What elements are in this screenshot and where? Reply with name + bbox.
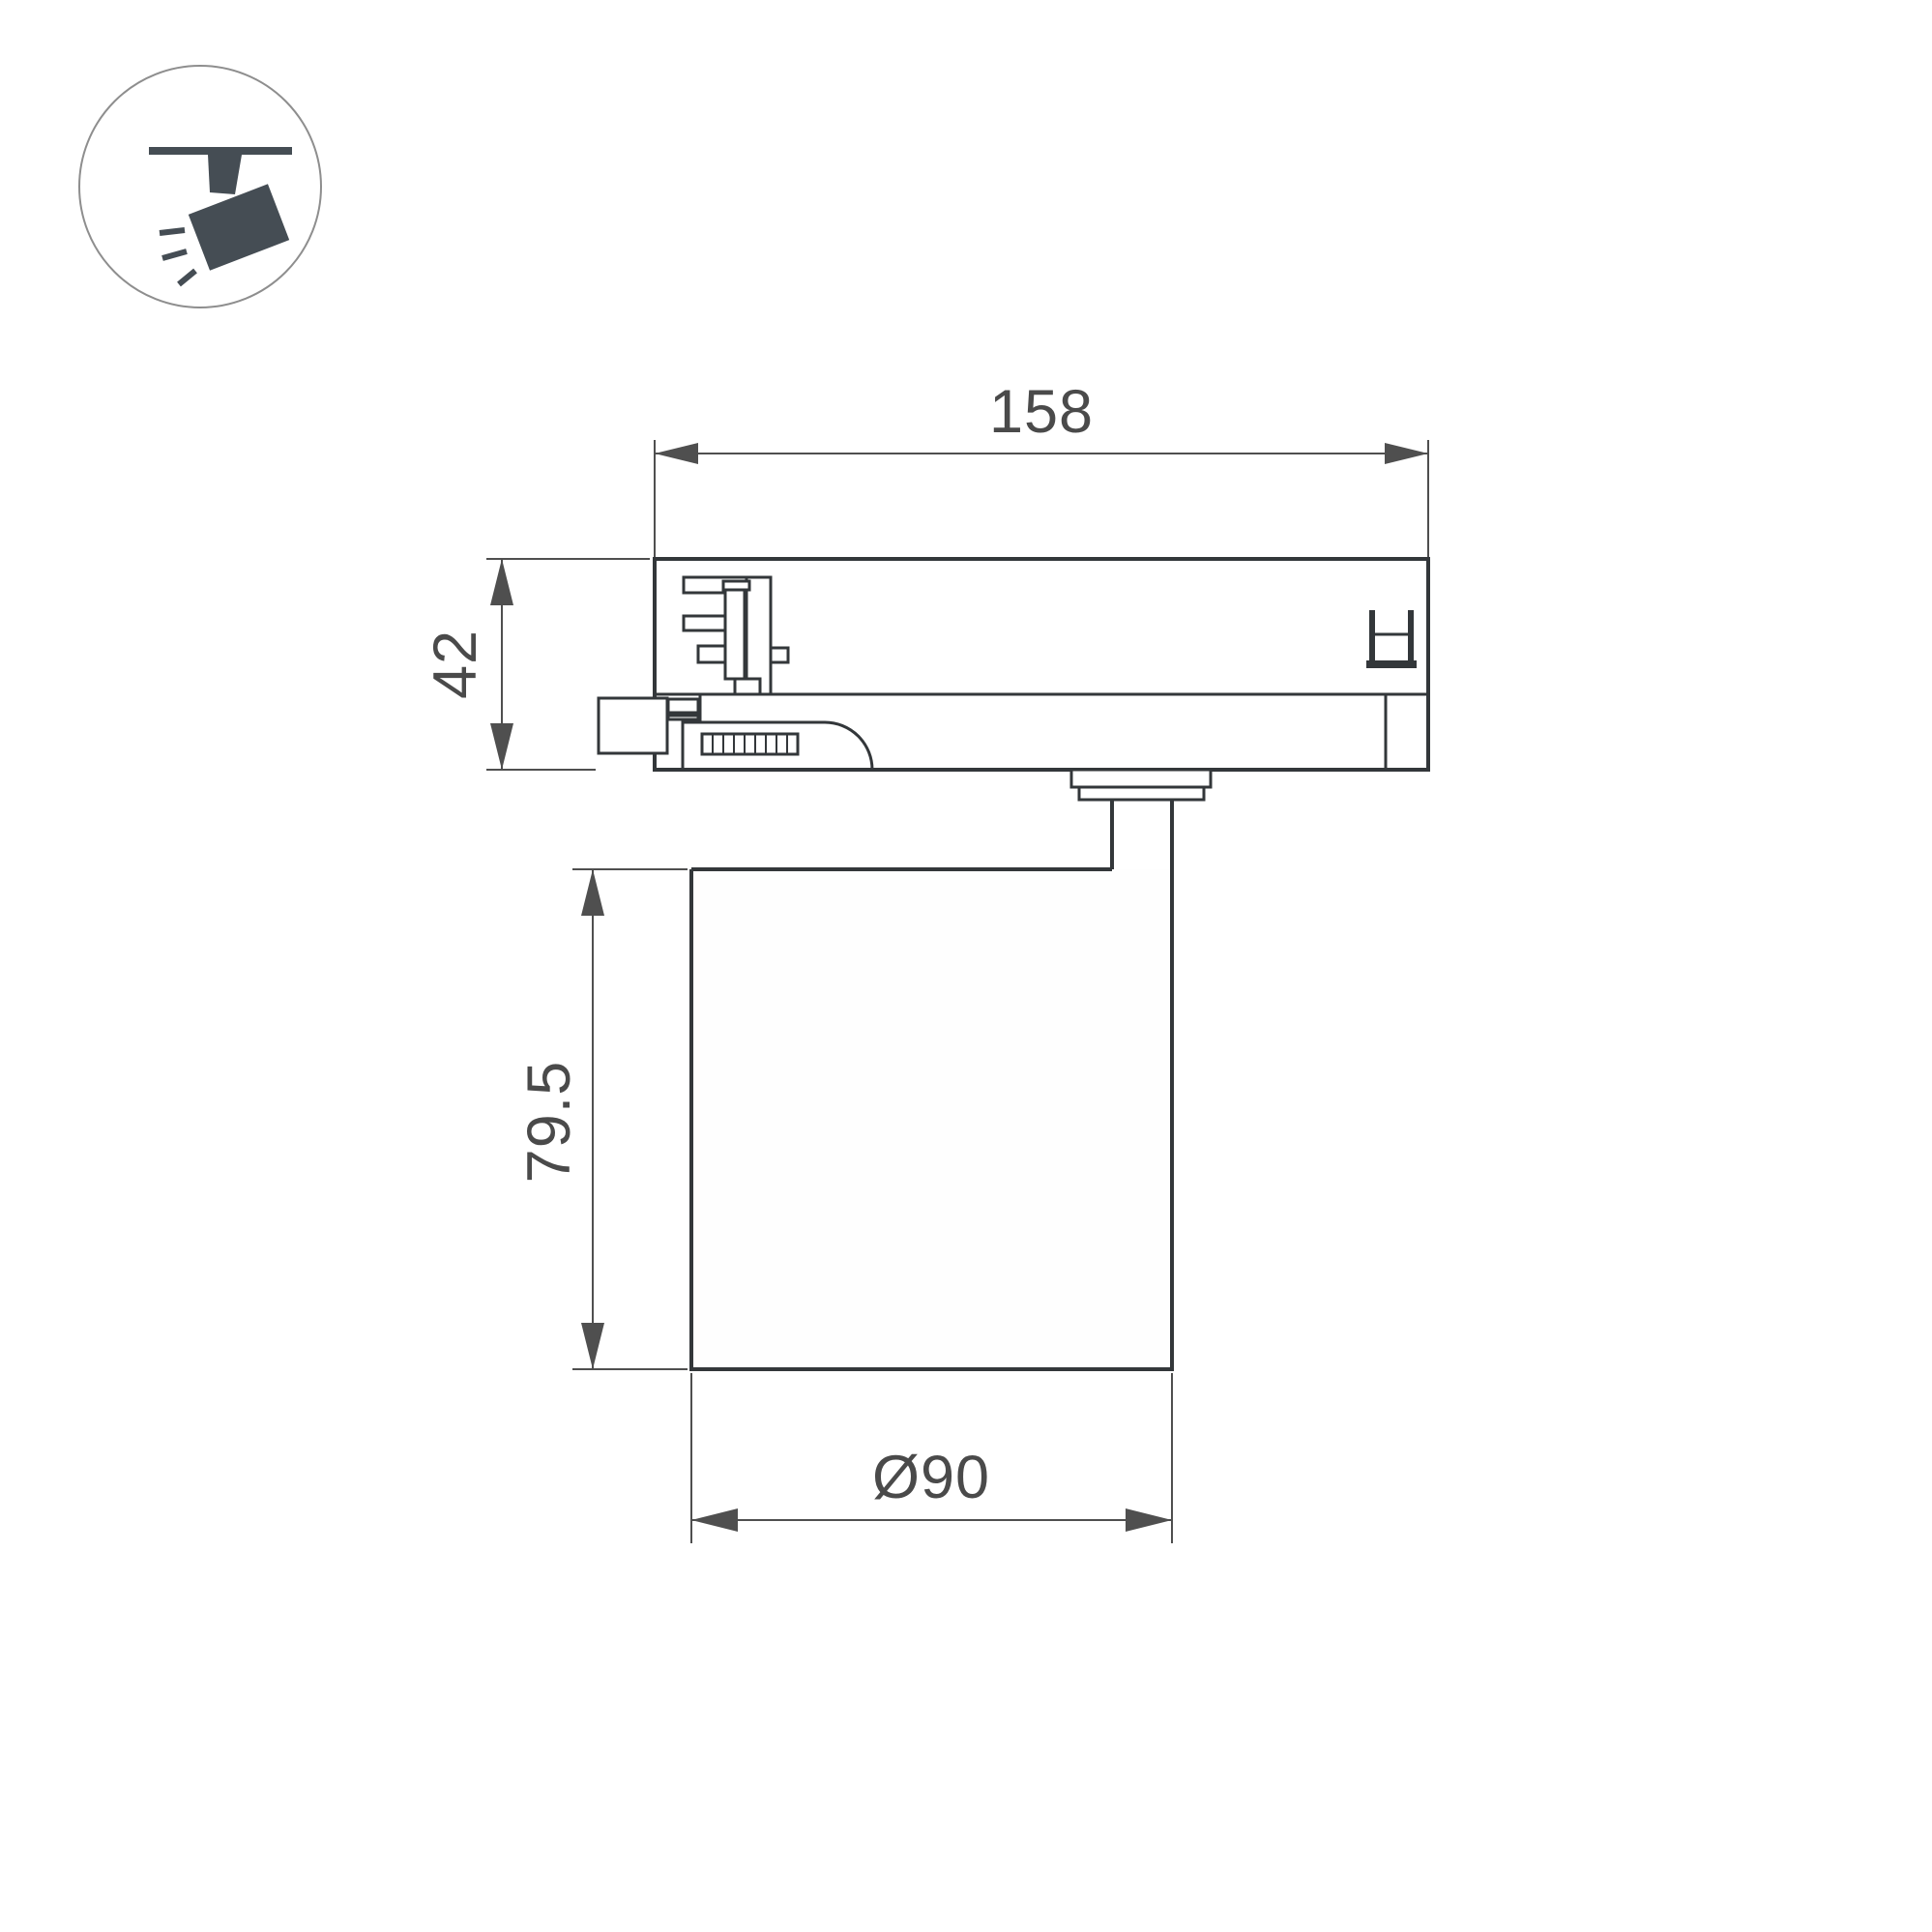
dimension-label-diameter-90: Ø90 <box>872 1444 990 1511</box>
product-side-view <box>599 559 1428 1369</box>
swivel-stem <box>1071 770 1211 800</box>
dimension-label-158: 158 <box>989 378 1094 446</box>
icon-circle <box>79 66 321 307</box>
dimension-lamp-body-diameter: Ø90 <box>691 1373 1172 1543</box>
lamp-cylinder <box>691 800 1172 1369</box>
lock-bracket <box>1366 610 1417 668</box>
arrow-left-icon <box>655 443 698 464</box>
adapter-lower-band <box>599 694 1386 770</box>
contact-assembly <box>684 577 788 694</box>
latch-lever <box>599 698 667 753</box>
arrow-right-icon <box>1126 1508 1172 1532</box>
arrow-left-icon <box>691 1508 738 1532</box>
vent-grille <box>702 734 798 754</box>
dimension-label-42: 42 <box>422 629 489 699</box>
drawing-page: 158 42 79.5 Ø90 <box>0 0 1932 1932</box>
arrow-down-icon <box>581 1323 604 1369</box>
icon-track-bar <box>149 147 292 155</box>
track-spotlight-icon <box>79 66 321 307</box>
dimension-label-79-5: 79.5 <box>515 1061 583 1184</box>
dimension-lamp-body-height: 79.5 <box>515 869 688 1369</box>
arrow-down-icon <box>490 723 513 770</box>
latch-clip <box>668 699 698 713</box>
technical-drawing: 158 42 79.5 Ø90 <box>0 0 1932 1932</box>
arrow-up-icon <box>490 559 513 605</box>
arrow-right-icon <box>1385 443 1428 464</box>
inner-housing <box>683 694 872 770</box>
dimension-track-adapter-width: 158 <box>655 378 1428 557</box>
arrow-up-icon <box>581 869 604 916</box>
